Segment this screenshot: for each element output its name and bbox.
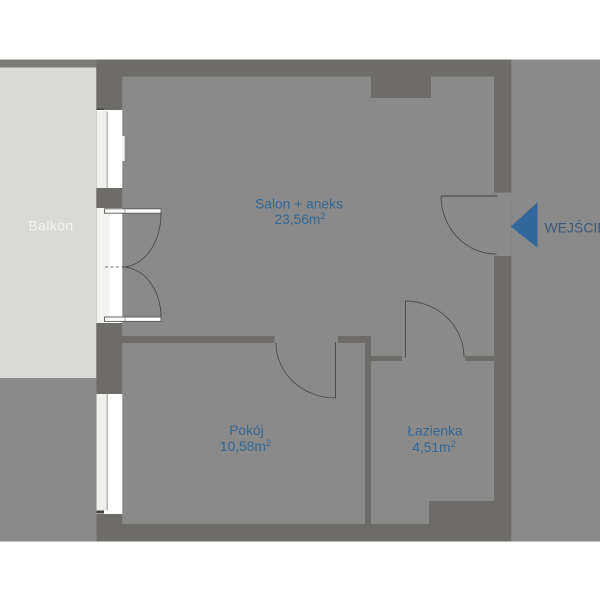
svg-text:Balkon: Balkon	[28, 218, 73, 234]
svg-text:4,51m2: 4,51m2	[412, 439, 456, 455]
svg-text:10,58m2: 10,58m2	[220, 438, 271, 454]
svg-text:Pokój: Pokój	[229, 423, 264, 438]
svg-text:Salon + aneks: Salon + aneks	[255, 197, 343, 212]
svg-text:23,56m2: 23,56m2	[274, 211, 325, 227]
svg-text:WEJŚCIE: WEJŚCIE	[545, 219, 600, 236]
svg-text:Łazienka: Łazienka	[407, 424, 463, 439]
